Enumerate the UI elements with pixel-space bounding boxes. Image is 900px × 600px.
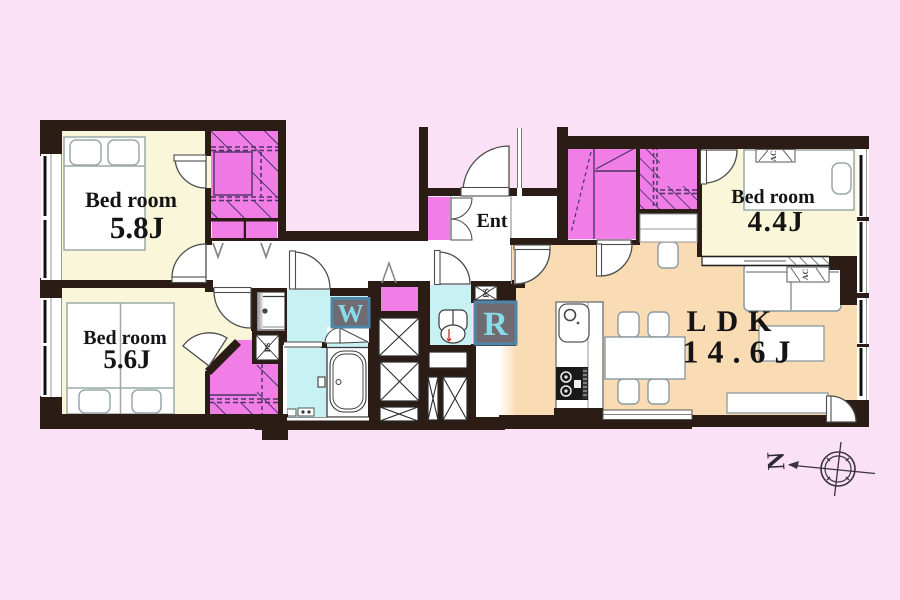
svg-text:PS: PS [263, 342, 272, 352]
svg-text:AC: AC [769, 150, 778, 162]
svg-text:R: R [483, 306, 508, 343]
svg-text:PS: PS [482, 288, 491, 298]
svg-text:5.6J: 5.6J [103, 344, 150, 374]
svg-text:Bed room: Bed room [731, 186, 815, 208]
svg-text:W: W [338, 299, 364, 328]
svg-text:N: N [763, 451, 791, 470]
svg-text:AC: AC [801, 269, 810, 281]
svg-text:5.8J: 5.8J [110, 210, 164, 245]
svg-text:4.4J: 4.4J [748, 206, 805, 238]
svg-text:Bed room: Bed room [85, 187, 177, 212]
svg-text:Ent: Ent [476, 210, 507, 232]
svg-text:14.6J: 14.6J [683, 334, 800, 370]
